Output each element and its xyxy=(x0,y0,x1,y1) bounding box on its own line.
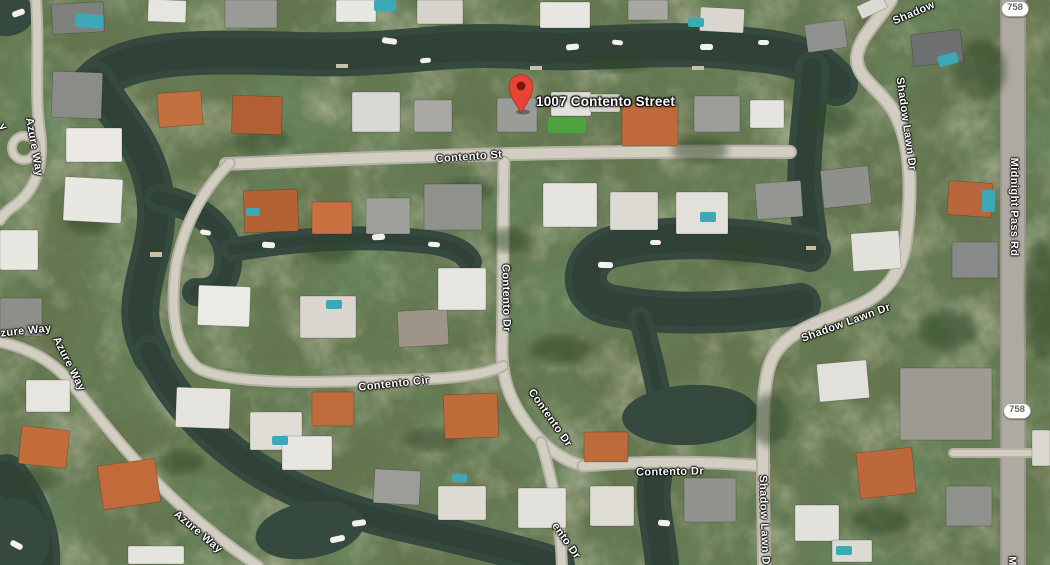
dock xyxy=(150,252,162,257)
building-roof xyxy=(755,180,803,219)
building-roof xyxy=(684,478,736,522)
boat xyxy=(658,520,670,527)
tree-cluster xyxy=(804,104,856,136)
building-roof xyxy=(551,92,591,116)
swimming-pool xyxy=(982,190,995,212)
tree-cluster xyxy=(156,450,204,474)
boat xyxy=(700,44,713,50)
tree-cluster xyxy=(716,240,764,264)
building-roof xyxy=(590,94,620,112)
tree-cluster xyxy=(590,52,650,72)
tree-cluster xyxy=(18,468,62,492)
building-roof xyxy=(352,92,400,132)
building-roof xyxy=(312,202,352,234)
canal-depth xyxy=(804,68,812,255)
building-roof xyxy=(366,198,410,234)
swimming-pool xyxy=(452,474,467,482)
swimming-pool xyxy=(374,0,396,11)
swimming-pool xyxy=(272,436,288,445)
swimming-pool xyxy=(326,300,342,309)
boat xyxy=(428,242,440,248)
building-roof xyxy=(148,0,187,23)
building-roof xyxy=(128,546,184,564)
building-roof xyxy=(1032,430,1050,466)
swimming-pool xyxy=(246,208,260,216)
boat xyxy=(420,58,431,64)
building-roof xyxy=(856,447,917,499)
building-roof xyxy=(0,230,38,270)
building-roof xyxy=(543,183,597,227)
building-roof xyxy=(610,192,658,230)
building-roof xyxy=(851,230,902,271)
building-roof xyxy=(438,486,486,520)
road-surface xyxy=(583,462,764,466)
tree-cluster xyxy=(750,394,790,446)
building-roof xyxy=(157,91,203,128)
building-roof xyxy=(590,486,634,526)
building-roof xyxy=(946,486,992,526)
building-roof xyxy=(540,2,590,28)
tree-cluster xyxy=(488,228,532,252)
building-roof xyxy=(438,268,486,310)
tree-cluster xyxy=(918,310,978,350)
boat xyxy=(262,242,275,249)
building-roof xyxy=(443,393,499,439)
dock xyxy=(692,66,704,70)
tree-cluster xyxy=(672,137,728,163)
lawn-layer xyxy=(548,117,586,133)
swimming-pool xyxy=(836,546,852,555)
building-roof xyxy=(414,100,452,132)
building-roof xyxy=(804,19,848,52)
dock xyxy=(336,64,348,68)
building-roof xyxy=(424,184,482,230)
boat xyxy=(758,40,769,45)
boat xyxy=(598,262,613,269)
building-roof xyxy=(51,71,103,119)
building-roof xyxy=(518,488,566,528)
swimming-pool xyxy=(688,18,704,27)
building-roof xyxy=(63,177,123,224)
satellite-map[interactable]: Contento StContento DrContento CirConten… xyxy=(0,0,1050,565)
building-roof xyxy=(197,285,250,327)
satellite-imagery xyxy=(0,0,1050,565)
building-roof xyxy=(26,380,70,412)
swimming-pool xyxy=(74,13,103,29)
pin-hole xyxy=(517,82,526,91)
building-roof xyxy=(952,242,998,278)
lawn-patch xyxy=(548,117,586,133)
tree-cluster xyxy=(304,238,356,262)
building-roof xyxy=(312,392,354,426)
dock xyxy=(806,246,816,250)
building-roof xyxy=(97,458,161,510)
building-roof xyxy=(750,100,784,128)
building-roof xyxy=(584,432,628,462)
building-roof xyxy=(231,95,282,135)
building-roof xyxy=(820,166,872,209)
building-roof xyxy=(175,387,230,429)
building-roof xyxy=(795,505,839,541)
building-roof xyxy=(694,96,740,132)
building-roof xyxy=(816,360,869,402)
building-roof xyxy=(622,104,678,146)
building-roof xyxy=(628,0,668,20)
building-roof xyxy=(66,128,122,162)
boat xyxy=(372,234,385,241)
building-roof xyxy=(336,0,376,22)
building-roof xyxy=(282,436,332,470)
building-roof xyxy=(417,0,463,24)
building-roof xyxy=(397,309,449,348)
dock xyxy=(530,66,542,70)
building-roof xyxy=(699,7,744,33)
building-roof xyxy=(373,469,421,505)
building-roof xyxy=(900,368,992,440)
building-roof xyxy=(225,0,277,28)
building-roof xyxy=(0,298,42,336)
tree-cluster xyxy=(530,336,590,364)
tree-cluster xyxy=(852,506,908,534)
swimming-pool xyxy=(700,212,716,222)
building-roof xyxy=(18,426,70,469)
boat xyxy=(650,240,661,245)
